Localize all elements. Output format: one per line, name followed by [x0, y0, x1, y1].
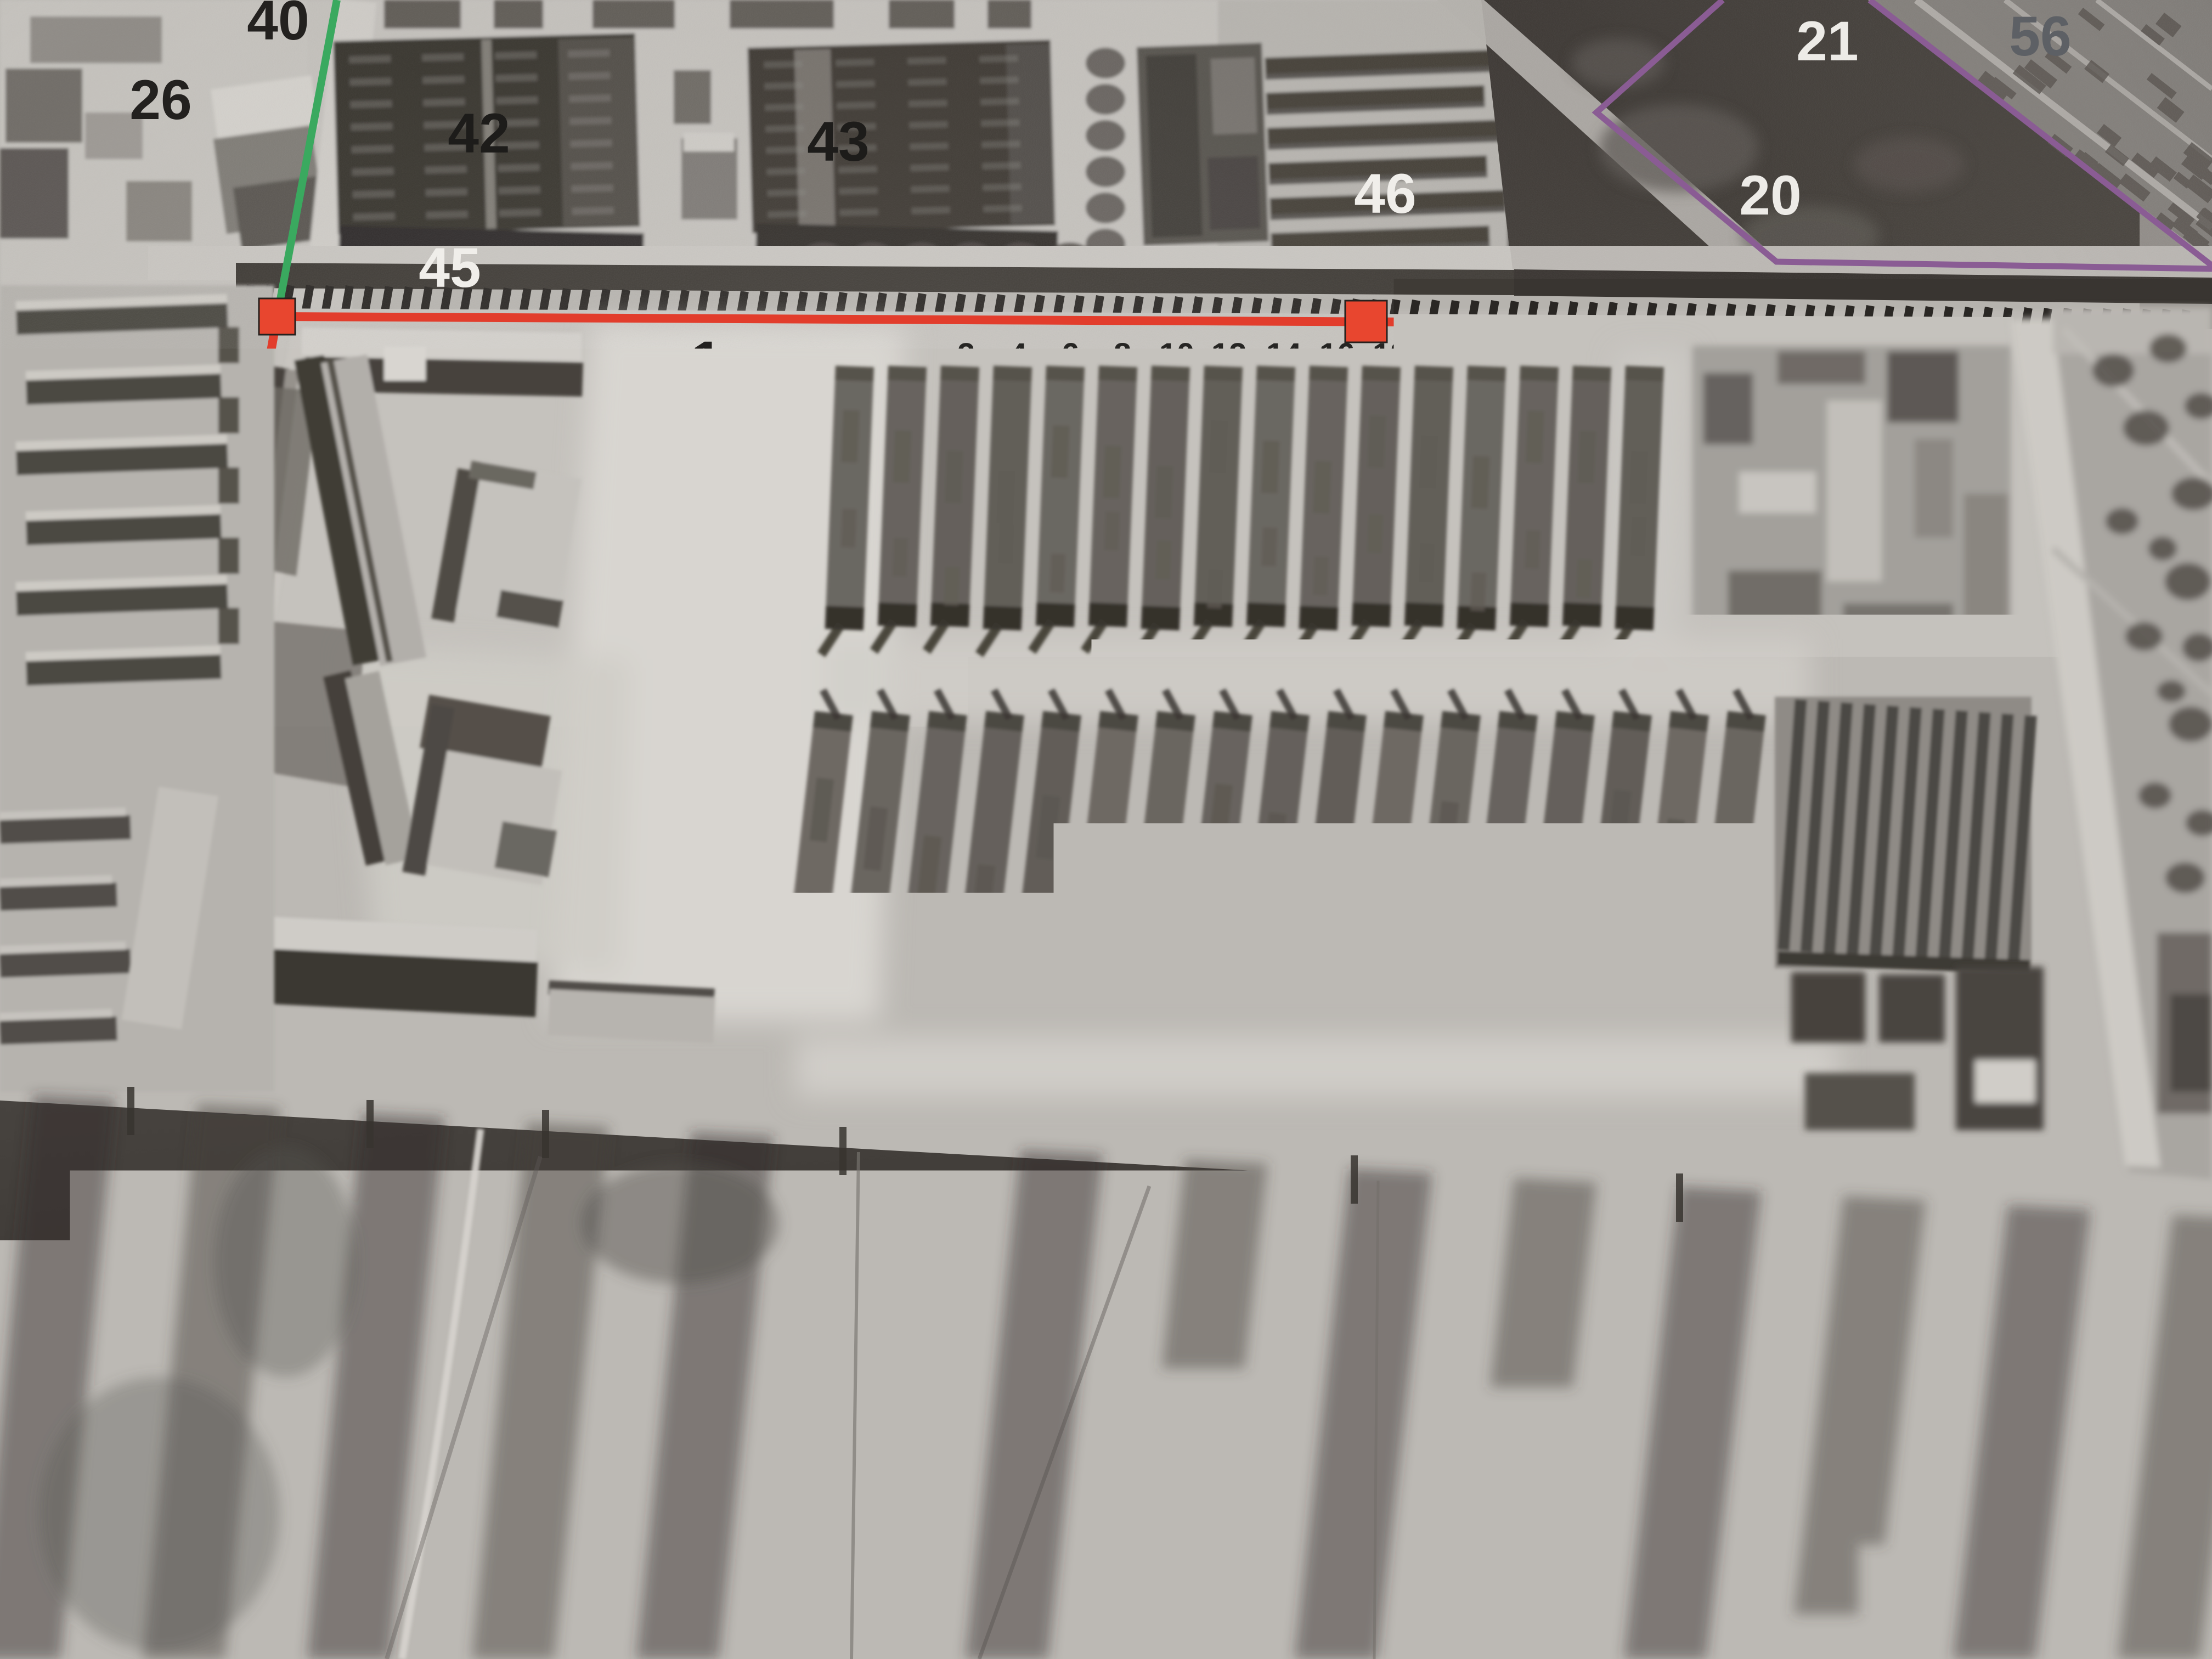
svg-text:25: 25: [99, 489, 161, 551]
svg-text:2: 2: [957, 337, 975, 373]
svg-text:56: 56: [2009, 5, 2071, 67]
svg-text:3: 3: [975, 1039, 992, 1074]
svg-text:40: 40: [247, 0, 309, 52]
svg-text:9: 9: [1153, 1039, 1171, 1074]
svg-text:4: 4: [1009, 337, 1027, 373]
svg-text:21: 21: [1796, 10, 1858, 72]
svg-text:16: 16: [1830, 795, 1892, 857]
svg-text:5: 5: [1036, 1039, 1053, 1074]
svg-text:29: 29: [1740, 1039, 1775, 1074]
svg-text:17: 17: [1829, 521, 1891, 583]
svg-text:8: 8: [1114, 337, 1131, 373]
svg-text:14: 14: [1838, 969, 1900, 1031]
svg-text:12: 12: [854, 826, 916, 889]
svg-text:10: 10: [1228, 477, 1290, 539]
svg-text:16: 16: [1319, 337, 1355, 373]
svg-text:7: 7: [1096, 1039, 1114, 1074]
svg-text:19: 19: [1446, 1039, 1482, 1074]
svg-text:14: 14: [1266, 337, 1302, 373]
svg-text:12: 12: [1211, 337, 1247, 373]
svg-text:15: 15: [1965, 988, 2027, 1050]
svg-text:2: 2: [690, 640, 721, 702]
svg-text:75: 75: [1864, 1517, 1917, 1572]
svg-text:13: 13: [1222, 824, 1284, 887]
svg-text:30: 30: [1685, 337, 1721, 373]
svg-text:10: 10: [1159, 337, 1195, 373]
svg-text:3: 3: [356, 523, 387, 586]
svg-text:1: 1: [919, 1039, 936, 1074]
svg-text:7: 7: [499, 520, 531, 582]
svg-text:26: 26: [1583, 337, 1619, 373]
svg-text:23: 23: [1565, 1039, 1600, 1074]
svg-text:43: 43: [807, 110, 869, 173]
svg-text:11: 11: [789, 756, 849, 819]
svg-text:13: 13: [1267, 1039, 1303, 1074]
svg-text:1: 1: [691, 330, 723, 392]
svg-text:20: 20: [1423, 337, 1458, 373]
svg-text:25: 25: [1623, 1039, 1659, 1074]
svg-text:5: 5: [398, 980, 430, 1043]
svg-text:24: 24: [1529, 337, 1565, 373]
svg-text:21: 21: [1505, 1039, 1541, 1074]
svg-text:20: 20: [1739, 164, 1801, 227]
svg-text:45: 45: [419, 236, 481, 299]
svg-text:26: 26: [129, 69, 191, 131]
svg-text:6: 6: [1062, 337, 1079, 373]
svg-text:42: 42: [448, 102, 510, 165]
svg-text:28: 28: [1633, 337, 1669, 373]
svg-text:11: 11: [1210, 1039, 1243, 1074]
svg-text:22: 22: [1475, 337, 1510, 373]
svg-text:46: 46: [1354, 162, 1416, 225]
svg-text:8: 8: [825, 532, 856, 594]
svg-text:18: 18: [1373, 337, 1408, 373]
svg-text:9: 9: [892, 465, 923, 527]
svg-text:6: 6: [1056, 656, 1087, 718]
svg-text:4: 4: [261, 637, 292, 700]
svg-text:15: 15: [1325, 1039, 1361, 1074]
svg-text:27: 27: [1681, 1039, 1717, 1074]
svg-text:17: 17: [1386, 1039, 1422, 1074]
